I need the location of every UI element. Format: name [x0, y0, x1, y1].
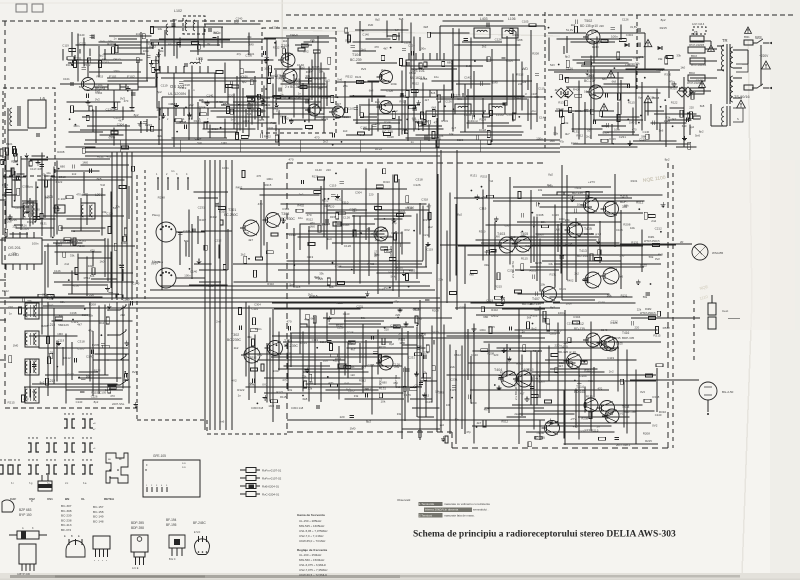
svg-text:2n2: 2n2 [299, 192, 304, 196]
svg-text:1M0: 1M0 [118, 263, 124, 267]
svg-text:47p: 47p [304, 317, 309, 321]
svg-text:C304: C304 [459, 305, 466, 309]
svg-text:1k0: 1k0 [350, 373, 355, 377]
svg-text:4k7: 4k7 [520, 392, 525, 396]
svg-text:WS: WS [755, 35, 762, 40]
svg-text:WS4-B5: WS4-B5 [712, 251, 724, 255]
svg-text:Gama de frecventa: Gama de frecventa [297, 513, 325, 517]
svg-text:C318: C318 [22, 185, 29, 189]
svg-text:R122: R122 [414, 308, 422, 312]
svg-text:31,8V: 31,8V [630, 25, 637, 29]
svg-text:x: x [94, 560, 95, 562]
svg-text:US1: US1 [47, 497, 53, 501]
svg-text:100n: 100n [143, 49, 150, 53]
svg-text:8p2: 8p2 [550, 306, 555, 310]
svg-text:10k: 10k [446, 403, 451, 407]
svg-text:22k: 22k [424, 350, 429, 354]
svg-text:56k: 56k [624, 204, 629, 208]
svg-text:22k: 22k [438, 278, 443, 282]
svg-text:UKW-65,0 ÷ 73 MHz: UKW-65,0 ÷ 73 MHz [299, 539, 326, 543]
svg-text:1n: 1n [280, 93, 284, 97]
svg-text:R208: R208 [432, 309, 439, 313]
svg-text:680: 680 [375, 253, 380, 257]
svg-text:56k: 56k [184, 239, 189, 243]
svg-text:2k2: 2k2 [120, 313, 125, 317]
svg-text:R512: R512 [454, 353, 461, 357]
svg-text:C126: C126 [609, 137, 616, 141]
svg-text:C119: C119 [300, 341, 307, 345]
svg-text:33k: 33k [157, 134, 162, 138]
svg-text:CAF: CAF [10, 497, 16, 501]
svg-text:R131: R131 [424, 218, 432, 222]
svg-text:BC-239C: BC-239C [284, 344, 298, 348]
svg-text:BDP-398: BDP-398 [131, 526, 144, 530]
svg-text:0V2: 0V2 [303, 50, 309, 54]
svg-text:8p2: 8p2 [665, 157, 670, 161]
svg-text:220: 220 [8, 305, 13, 309]
svg-text:1k0: 1k0 [234, 21, 239, 25]
svg-text:C126: C126 [344, 244, 352, 248]
svg-text:R512: R512 [346, 75, 354, 79]
svg-text:100n: 100n [537, 232, 544, 236]
svg-text:R215: R215 [481, 174, 488, 178]
svg-text:R310: R310 [592, 45, 599, 49]
svg-text:2k2: 2k2 [440, 423, 445, 427]
svg-text:10k: 10k [509, 241, 514, 245]
svg-text:D201 AMP-135: D201 AMP-135 [60, 240, 79, 244]
svg-text:R512: R512 [223, 102, 230, 106]
svg-text:33k: 33k [302, 375, 307, 379]
svg-text:C318: C318 [59, 175, 67, 179]
svg-text:220: 220 [555, 344, 560, 348]
svg-text:2k2: 2k2 [482, 44, 487, 48]
svg-text:56k: 56k [109, 135, 114, 139]
svg-text:R402: R402 [236, 185, 243, 189]
svg-text:4k7: 4k7 [425, 98, 430, 102]
svg-text:220: 220 [395, 313, 400, 317]
svg-text:C318: C318 [310, 294, 318, 298]
svg-text:6k8: 6k8 [700, 104, 705, 108]
svg-text:2k2: 2k2 [672, 117, 677, 121]
svg-text:~220V: ~220V [759, 54, 769, 58]
svg-text:US2-7,0 ÷ 7,4 MHz: US2-7,0 ÷ 7,4 MHz [299, 534, 324, 538]
svg-text:5n6: 5n6 [244, 231, 249, 235]
svg-text:C140: C140 [86, 355, 94, 359]
svg-text:56k: 56k [643, 295, 648, 299]
svg-text:C231: C231 [408, 355, 415, 359]
svg-text:R115: R115 [586, 395, 593, 399]
svg-text:100n: 100n [255, 327, 262, 331]
svg-text:C140: C140 [390, 324, 398, 328]
svg-text:R215: R215 [530, 269, 537, 273]
svg-text:C140: C140 [190, 270, 198, 274]
svg-text:R208: R208 [581, 417, 588, 421]
svg-text:C119: C119 [486, 298, 493, 302]
svg-text:R310: R310 [267, 282, 274, 286]
svg-text:C318: C318 [589, 93, 596, 97]
svg-text:C119: C119 [329, 183, 336, 187]
svg-text:C126: C126 [368, 363, 375, 367]
svg-text:C318: C318 [652, 395, 660, 399]
svg-text:R131: R131 [500, 371, 508, 375]
svg-text:x: x [106, 560, 107, 562]
svg-text:2n2: 2n2 [488, 179, 493, 183]
svg-text:51,9V: 51,9V [566, 28, 573, 32]
svg-text:C126: C126 [566, 67, 574, 71]
svg-text:4k7: 4k7 [240, 75, 245, 79]
svg-text:220: 220 [330, 205, 335, 209]
svg-text:R208: R208 [41, 324, 48, 328]
svg-text:C119: C119 [320, 340, 327, 344]
svg-text:4k7: 4k7 [361, 366, 366, 370]
svg-text:10k: 10k [308, 387, 313, 391]
svg-text:R310: R310 [584, 369, 591, 373]
svg-text:8p2: 8p2 [366, 419, 371, 423]
svg-text:R131: R131 [572, 130, 579, 134]
svg-text:C126: C126 [82, 313, 89, 317]
svg-text:C212: C212 [214, 239, 222, 243]
svg-text:4k7: 4k7 [484, 408, 489, 412]
svg-text:33k: 33k [564, 121, 569, 125]
svg-text:Pleug: Pleug [152, 213, 160, 217]
svg-text:R208: R208 [565, 242, 573, 246]
svg-text:T501: T501 [586, 74, 594, 78]
svg-text:C105: C105 [531, 92, 539, 96]
svg-text:BC-230C: BC-230C [281, 217, 295, 221]
svg-text:R122: R122 [671, 101, 678, 105]
svg-text:RvC-0204-01: RvC-0204-01 [262, 493, 280, 497]
svg-text:R512: R512 [491, 314, 499, 318]
svg-text:10u: 10u [298, 216, 303, 220]
svg-text:33k: 33k [27, 299, 32, 303]
svg-text:L106: L106 [508, 17, 516, 21]
svg-text:47p: 47p [348, 342, 353, 346]
svg-text:BC-239: BC-239 [350, 58, 362, 62]
svg-text:1n: 1n [31, 211, 35, 215]
svg-text:R512: R512 [533, 349, 540, 353]
svg-text:10k: 10k [88, 264, 93, 268]
svg-text:R131: R131 [441, 119, 448, 123]
svg-text:C126: C126 [386, 89, 393, 93]
svg-text:C140: C140 [315, 168, 322, 172]
svg-text:5n6: 5n6 [215, 201, 220, 205]
svg-text:C212: C212 [508, 235, 516, 239]
svg-text:Schema de principiu a radi: Schema de principiu a radioreceptorului … [413, 530, 676, 540]
svg-text:C117-345: C117-345 [30, 167, 43, 171]
svg-text:BC-148: BC-148 [93, 519, 104, 523]
svg-text:33k: 33k [666, 115, 671, 119]
svg-text:C140: C140 [297, 63, 305, 67]
svg-text:R122: R122 [97, 155, 104, 159]
svg-text:C101: C101 [63, 77, 70, 81]
svg-text:470: 470 [28, 185, 33, 189]
svg-text:2k2: 2k2 [241, 252, 246, 256]
svg-text:2k2: 2k2 [189, 103, 194, 107]
svg-text:R310: R310 [406, 206, 414, 210]
svg-text:100n: 100n [638, 55, 645, 59]
svg-text:R512: R512 [409, 71, 416, 75]
svg-text:C119: C119 [289, 233, 296, 237]
svg-text:BF-194: BF-194 [166, 518, 177, 522]
svg-text:T502: T502 [584, 19, 592, 23]
svg-text:2n2: 2n2 [72, 172, 77, 176]
svg-text:Cext: Cext [722, 309, 728, 313]
svg-text:S: S [737, 117, 739, 121]
svg-text:100n: 100n [558, 311, 565, 315]
svg-text:C304: C304 [579, 374, 587, 378]
svg-text:R215: R215 [495, 285, 503, 289]
svg-text:T403: T403 [497, 232, 505, 236]
svg-text:BC-157: BC-157 [93, 505, 104, 509]
svg-text:220: 220 [689, 106, 694, 110]
svg-text:C105: C105 [77, 346, 85, 350]
svg-text:C119: C119 [337, 326, 344, 330]
svg-text:680: 680 [382, 381, 387, 385]
svg-text:P101: P101 [6, 142, 13, 146]
svg-text:R122: R122 [640, 264, 647, 268]
svg-text:33k: 33k [364, 387, 369, 391]
svg-text:2n2: 2n2 [216, 319, 221, 323]
svg-text:56k: 56k [553, 131, 558, 135]
svg-text:1M0: 1M0 [375, 238, 381, 242]
svg-text:56k: 56k [635, 62, 640, 66]
svg-text:C126: C126 [445, 99, 452, 103]
svg-text:47p: 47p [466, 430, 471, 434]
svg-text:1M0: 1M0 [550, 139, 556, 143]
svg-text:C318: C318 [387, 135, 394, 139]
svg-text:C140: C140 [236, 17, 243, 21]
svg-text:33k: 33k [305, 74, 310, 78]
svg-text:C318: C318 [211, 127, 218, 131]
svg-text:R115: R115 [628, 101, 635, 105]
svg-text:masurate fata de masa .: masurate fata de masa . [444, 513, 475, 517]
svg-text:R215: R215 [535, 261, 543, 265]
svg-text:BYP 150: BYP 150 [19, 513, 32, 517]
svg-text:C105: C105 [437, 134, 444, 138]
svg-text:0V2: 0V2 [95, 98, 100, 102]
svg-text:4k7: 4k7 [558, 364, 563, 368]
svg-text:0V2: 0V2 [325, 79, 330, 83]
svg-text:2n2: 2n2 [609, 370, 614, 374]
svg-text:C126: C126 [62, 323, 70, 327]
svg-text:R115: R115 [91, 391, 98, 395]
svg-text:C140: C140 [133, 282, 140, 286]
svg-text:T411: T411 [574, 186, 582, 190]
svg-text:R115: R115 [568, 194, 575, 198]
svg-text:10k: 10k [288, 388, 293, 392]
svg-text:R310: R310 [379, 345, 386, 349]
svg-text:8p2: 8p2 [638, 96, 643, 100]
svg-text:220: 220 [340, 415, 345, 419]
svg-text:interna 20kΩ/V;in absenta: interna 20kΩ/V;in absenta [425, 508, 459, 512]
svg-text:RvB-0204-01: RvB-0204-01 [262, 485, 279, 489]
svg-text:100n: 100n [611, 35, 618, 39]
svg-text:33k: 33k [361, 316, 366, 320]
svg-text:6k8: 6k8 [412, 116, 417, 120]
svg-text:1M0: 1M0 [82, 160, 88, 164]
svg-text:R208: R208 [532, 51, 539, 55]
svg-text:5n6: 5n6 [431, 91, 436, 95]
svg-text:C140: C140 [343, 312, 350, 316]
svg-text:C105: C105 [348, 106, 355, 110]
svg-text:WTAT-130/085: WTAT-130/085 [689, 44, 705, 47]
svg-text:R122: R122 [591, 30, 598, 34]
svg-text:R512: R512 [83, 63, 91, 67]
svg-text:R310: R310 [664, 73, 671, 77]
svg-text:10k: 10k [381, 400, 386, 404]
svg-text:100n: 100n [264, 67, 271, 71]
svg-text:C119: C119 [312, 338, 319, 342]
svg-text:10k: 10k [538, 188, 543, 192]
svg-text:C105: C105 [506, 59, 513, 63]
svg-text:C318: C318 [293, 285, 301, 289]
svg-text:8p2: 8p2 [457, 212, 462, 216]
svg-text:2207-SSL: 2207-SSL [112, 402, 125, 406]
svg-text:1k0: 1k0 [375, 100, 380, 104]
svg-text:T416: T416 [622, 331, 629, 335]
svg-text:1M0: 1M0 [57, 332, 63, 336]
svg-text:C119: C119 [279, 96, 286, 100]
svg-text:L101: L101 [196, 57, 203, 61]
svg-text:x: x [102, 560, 103, 562]
svg-text:R131: R131 [79, 238, 86, 242]
svg-text:R310: R310 [670, 87, 677, 91]
svg-text:C212: C212 [168, 102, 175, 106]
svg-text:0V2: 0V2 [318, 277, 324, 281]
svg-text:C231: C231 [619, 135, 627, 139]
svg-text:8p2: 8p2 [532, 327, 537, 331]
svg-text:T414: T414 [576, 385, 584, 389]
svg-text:T409: T409 [584, 227, 592, 231]
svg-text:100n: 100n [332, 110, 339, 114]
svg-text:220: 220 [384, 327, 389, 331]
svg-text:C231: C231 [603, 38, 610, 42]
svg-text:WTAT-2500,5: WTAT-2500,5 [644, 239, 660, 243]
svg-text:470: 470 [110, 394, 115, 398]
svg-text:10u: 10u [584, 89, 589, 93]
svg-text:5n6: 5n6 [337, 78, 342, 82]
svg-text:2 x BD-307A: 2 x BD-307A [514, 383, 518, 400]
svg-text:C126: C126 [91, 394, 98, 398]
svg-text:4k7: 4k7 [248, 238, 253, 242]
svg-text:33k: 33k [354, 394, 359, 398]
svg-text:8p2: 8p2 [661, 18, 666, 22]
svg-text:P303: P303 [2, 183, 9, 187]
svg-text:2n2: 2n2 [651, 219, 656, 223]
svg-text:C318: C318 [421, 198, 428, 202]
svg-text:100n: 100n [391, 82, 398, 86]
svg-text:5n6: 5n6 [659, 129, 664, 133]
svg-text:R131: R131 [470, 173, 477, 177]
svg-text:R215: R215 [265, 183, 272, 187]
svg-text:10u: 10u [323, 359, 328, 363]
svg-text:R402: R402 [264, 134, 272, 138]
svg-text:R402: R402 [368, 262, 375, 266]
svg-text:BF-245C: BF-245C [193, 521, 206, 525]
svg-text:R115: R115 [515, 95, 522, 99]
svg-text:5n6: 5n6 [618, 275, 623, 279]
svg-text:22k: 22k [541, 220, 546, 224]
svg-text:2k2: 2k2 [514, 412, 519, 416]
svg-text:B E C: B E C [169, 558, 176, 561]
svg-text:C126: C126 [54, 269, 61, 273]
svg-text:WC: WC [213, 31, 219, 35]
svg-text:TS-90/16: TS-90/16 [734, 95, 750, 99]
svg-text:6k8: 6k8 [424, 25, 429, 29]
svg-text:C119: C119 [123, 298, 130, 302]
svg-text:C304: C304 [121, 241, 129, 245]
svg-text:470: 470 [328, 381, 333, 385]
svg-text:C126: C126 [495, 37, 503, 41]
svg-text:10k: 10k [541, 282, 546, 286]
svg-text:220: 220 [89, 293, 94, 297]
svg-text:6k8: 6k8 [432, 106, 437, 110]
svg-text:5n6: 5n6 [90, 274, 95, 278]
svg-text:C140: C140 [362, 33, 369, 37]
svg-text:220: 220 [229, 93, 234, 97]
svg-text:T406: T406 [521, 368, 529, 372]
svg-text:BD-135 gr 10: BD-135 gr 10 [558, 350, 576, 354]
svg-text:R208: R208 [623, 222, 631, 226]
svg-text:1n: 1n [9, 312, 13, 316]
svg-text:2.Tensiuni: 2.Tensiuni [419, 513, 432, 517]
svg-text:R208: R208 [312, 65, 320, 69]
svg-text:R310: R310 [571, 142, 579, 146]
svg-text:R512: R512 [501, 420, 508, 424]
svg-text:4k7: 4k7 [451, 126, 456, 130]
svg-text:C119: C119 [538, 87, 545, 91]
svg-text:5n6: 5n6 [361, 47, 366, 51]
svg-text:L102: L102 [174, 9, 182, 13]
svg-text:1n: 1n [171, 169, 175, 173]
svg-text:56k: 56k [391, 275, 396, 279]
svg-text:C126: C126 [413, 183, 421, 187]
svg-text:R402: R402 [567, 279, 574, 283]
svg-text:C318: C318 [78, 340, 86, 344]
svg-text:C140: C140 [76, 400, 83, 404]
svg-text:R208: R208 [206, 284, 214, 288]
svg-text:E S D: E S D [194, 531, 201, 534]
svg-text:C105: C105 [607, 212, 614, 216]
svg-text:R131: R131 [631, 179, 638, 183]
svg-text:6k8: 6k8 [612, 80, 617, 84]
svg-text:UL-150 ÷ 285kHz: UL-150 ÷ 285kHz [299, 519, 322, 523]
svg-text:470: 470 [374, 45, 379, 49]
svg-text:1n: 1n [114, 36, 118, 40]
svg-text:0V2: 0V2 [345, 39, 351, 43]
svg-text:0V2: 0V2 [231, 379, 237, 383]
svg-text:R208: R208 [92, 343, 99, 347]
svg-text:C119: C119 [53, 206, 60, 210]
svg-text:5n6: 5n6 [619, 254, 624, 258]
svg-text:R310: R310 [656, 68, 664, 72]
svg-text:C119: C119 [607, 356, 614, 360]
svg-text:R512: R512 [149, 44, 156, 48]
svg-text:5n6: 5n6 [158, 260, 163, 264]
svg-text:C304: C304 [626, 33, 634, 37]
svg-text:R208: R208 [525, 244, 533, 248]
svg-text:100n: 100n [566, 301, 573, 305]
svg-text:o o: o o [182, 462, 186, 465]
svg-text:C303 6n8: C303 6n8 [251, 406, 264, 410]
svg-text:100n: 100n [184, 273, 191, 277]
svg-text:+27V: +27V [588, 180, 595, 184]
svg-text:L207: L207 [95, 193, 102, 197]
svg-text:F: F [146, 463, 148, 467]
svg-text:K: K [31, 499, 33, 503]
svg-text:T413: T413 [579, 249, 587, 253]
svg-text:R512: R512 [64, 356, 72, 360]
